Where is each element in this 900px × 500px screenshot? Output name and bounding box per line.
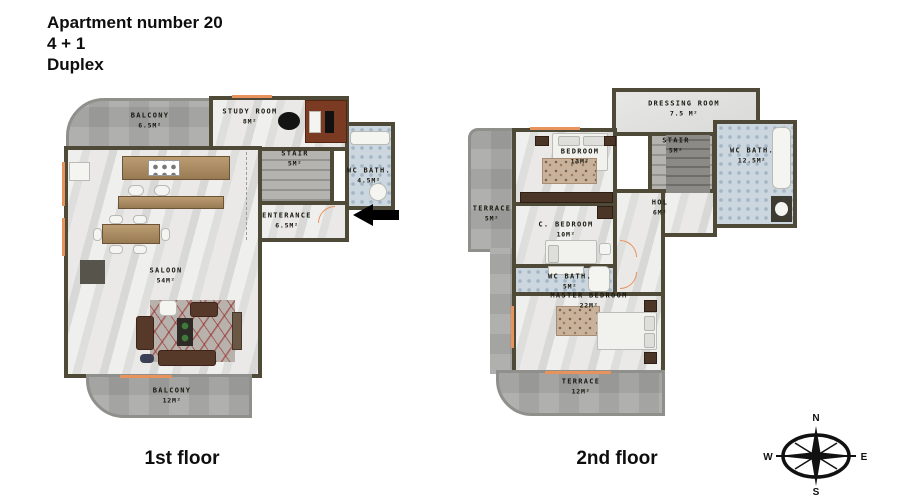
title-line-1: Apartment number 20 bbox=[47, 12, 223, 33]
room-area: 8M² bbox=[222, 118, 277, 126]
room-label-bedroom: BEDROOM 13M² bbox=[561, 148, 600, 167]
room-area: 5M² bbox=[473, 215, 512, 223]
wall-column bbox=[80, 260, 105, 284]
room-label-wcbath-small: WC BATH. 5M² bbox=[548, 273, 592, 292]
compass-label-w: W bbox=[763, 452, 773, 463]
dining-chair bbox=[133, 215, 147, 224]
dining-chair bbox=[133, 245, 147, 254]
title-line-3: Duplex bbox=[47, 54, 223, 75]
room-name: WC BATH. bbox=[730, 147, 774, 156]
room-name: DRESSING ROOM bbox=[648, 100, 720, 109]
room-area: 12M² bbox=[562, 388, 601, 396]
bed-c-bedroom bbox=[545, 240, 597, 264]
room-label-dressing: DRESSING ROOM 7.5 M² bbox=[648, 100, 720, 119]
room-area: 12M² bbox=[153, 397, 192, 405]
compass-center bbox=[813, 453, 819, 459]
bar-stool bbox=[128, 185, 144, 196]
nightstand-master bbox=[644, 300, 657, 312]
room-name: WC BATH. bbox=[347, 167, 391, 176]
window-accent bbox=[530, 127, 580, 130]
floor1-caption: 1st floor bbox=[145, 448, 220, 470]
entrance-arrow-icon bbox=[353, 204, 399, 226]
room-name: STAIR bbox=[281, 150, 309, 159]
sofa-bottom bbox=[158, 350, 216, 366]
room-name: STUDY ROOM bbox=[222, 108, 277, 117]
nightstand bbox=[535, 136, 549, 146]
dining-chair bbox=[109, 245, 123, 254]
room-name: MASTER BEDROOM bbox=[550, 292, 627, 301]
title-block: Apartment number 20 4 + 1 Duplex bbox=[47, 12, 223, 75]
window-accent bbox=[120, 375, 172, 378]
room-label-saloon: SALOON 54M² bbox=[149, 267, 182, 286]
room-area: 22M² bbox=[550, 302, 627, 310]
room-label-balcony-bottom: BALCONY 12M² bbox=[153, 387, 192, 406]
pillow bbox=[583, 136, 605, 146]
room-name: BALCONY bbox=[131, 112, 170, 121]
room-area: 6.5M² bbox=[262, 222, 312, 230]
room-name: HOL bbox=[652, 199, 669, 208]
window-accent bbox=[62, 162, 65, 206]
toilet-bowl bbox=[775, 202, 788, 216]
compass-label-s: S bbox=[813, 487, 820, 496]
bar-stool bbox=[154, 185, 170, 196]
arrow-head bbox=[353, 204, 373, 226]
room-name: ENTERANCE bbox=[262, 212, 312, 221]
rug-master bbox=[556, 306, 600, 336]
kitchen-sink bbox=[69, 162, 90, 181]
nightstand bbox=[604, 136, 616, 146]
window-accent bbox=[511, 306, 514, 348]
bathtub-f1 bbox=[350, 131, 390, 145]
room-label-balcony-top: BALCONY 6.5M² bbox=[131, 112, 170, 131]
wardrobe-strip bbox=[520, 192, 613, 203]
room-area: 6M² bbox=[652, 209, 669, 217]
dashed-divider bbox=[246, 152, 247, 240]
room-name: TERRACE bbox=[562, 378, 601, 387]
wardrobe-cbedroom bbox=[597, 206, 613, 219]
pillow bbox=[644, 316, 655, 331]
room-area: 54M² bbox=[149, 277, 182, 285]
floorplan-canvas: Apartment number 20 4 + 1 Duplex BALCON bbox=[0, 0, 900, 500]
room-area: 5M² bbox=[662, 147, 690, 155]
room-area: 12.5M² bbox=[730, 157, 774, 165]
sink-f1 bbox=[369, 183, 387, 201]
room-name: STAIR bbox=[662, 137, 690, 146]
title-line-2: 4 + 1 bbox=[47, 33, 223, 54]
sofa-top bbox=[190, 302, 218, 317]
kitchen-island bbox=[118, 196, 224, 209]
room-name: C. BEDROOM bbox=[538, 221, 593, 230]
room-name: SALOON bbox=[149, 267, 182, 276]
pillow bbox=[548, 245, 559, 263]
room-label-wcbath-f1: WC BATH. 4.5M² bbox=[347, 167, 391, 186]
room-name: WC BATH. bbox=[548, 273, 592, 282]
tv-console bbox=[232, 312, 242, 350]
room-label-hall: HOL 6M² bbox=[652, 199, 669, 218]
pillow bbox=[558, 136, 580, 146]
room-area: 6.5M² bbox=[131, 122, 170, 130]
side-table bbox=[599, 243, 611, 255]
compass-rose-icon: N S W E bbox=[762, 412, 870, 496]
room-area: 13M² bbox=[561, 158, 600, 166]
room-label-terrace-bottom: TERRACE 12M² bbox=[562, 378, 601, 397]
floor2-caption: 2nd floor bbox=[576, 448, 657, 470]
compass-label-n: N bbox=[812, 413, 819, 424]
room-label-stair-f2: STAIR 5M² bbox=[662, 137, 690, 156]
dining-chair bbox=[161, 228, 170, 241]
dining-chair bbox=[93, 228, 102, 241]
room-area: 5M² bbox=[548, 283, 592, 291]
compass-label-e: E bbox=[861, 452, 868, 463]
room-label-study: STUDY ROOM 8M² bbox=[222, 108, 277, 127]
bathtub-large bbox=[772, 127, 791, 189]
dining-table bbox=[102, 224, 160, 244]
window-accent bbox=[232, 95, 272, 98]
room-label-wcbath-large: WC BATH. 12.5M² bbox=[730, 147, 774, 166]
toilet-unit bbox=[771, 196, 792, 222]
room-area: 5M² bbox=[281, 160, 309, 168]
pillow bbox=[644, 333, 655, 348]
bed-master bbox=[597, 312, 657, 350]
room-name: BALCONY bbox=[153, 387, 192, 396]
study-monitor bbox=[325, 111, 334, 133]
stove bbox=[148, 160, 180, 176]
pouf bbox=[140, 354, 154, 363]
compass-south-point bbox=[811, 456, 821, 486]
room-label-stair-f1: STAIR 5M² bbox=[281, 150, 309, 169]
dining-chair bbox=[109, 215, 123, 224]
room-area: 10M² bbox=[538, 231, 593, 239]
room-label-terrace-left: TERRACE 5M² bbox=[473, 205, 512, 224]
room-label-c-bedroom: C. BEDROOM 10M² bbox=[538, 221, 593, 240]
room-label-master-bedroom: MASTER BEDROOM 22M² bbox=[550, 292, 627, 311]
room-label-entrance: ENTERANCE 6.5M² bbox=[262, 212, 312, 231]
study-desk bbox=[309, 111, 321, 133]
coffee-table bbox=[177, 318, 193, 346]
armchair-left bbox=[136, 316, 154, 350]
nightstand-master bbox=[644, 352, 657, 364]
window-accent bbox=[545, 371, 611, 374]
window-accent bbox=[62, 218, 65, 256]
compass-north-point bbox=[811, 426, 821, 456]
room-area: 4.5M² bbox=[347, 177, 391, 185]
armchair bbox=[159, 300, 177, 316]
room-name: BEDROOM bbox=[561, 148, 600, 157]
room-area: 7.5 M² bbox=[648, 110, 720, 118]
office-chair bbox=[278, 112, 300, 130]
room-name: TERRACE bbox=[473, 205, 512, 214]
arrow-shaft bbox=[373, 210, 399, 220]
room-terrace-left bbox=[468, 128, 516, 252]
